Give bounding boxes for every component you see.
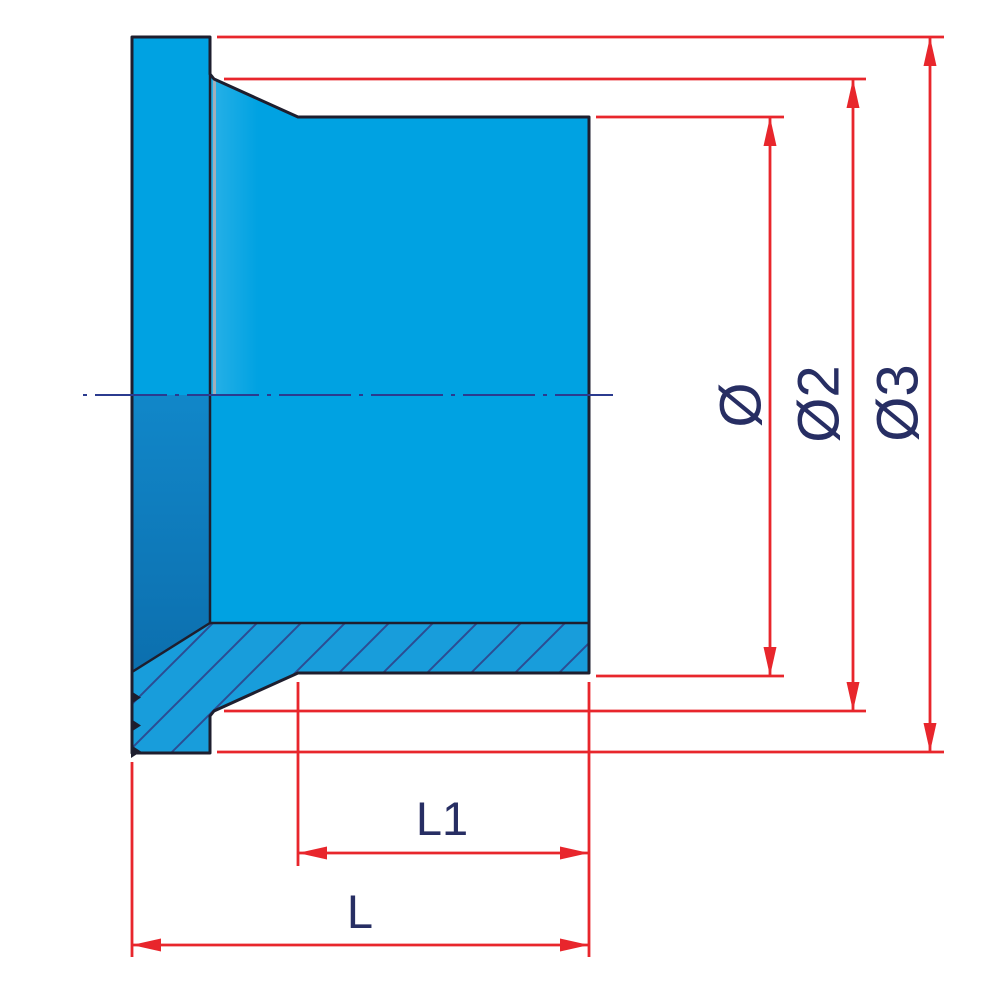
dim-length1-label: L1 [416,792,468,845]
dim-diameter3-label: Ø3 [865,364,930,441]
part-section-hatch [132,623,589,753]
dim-length-label: L [347,885,373,938]
technical-drawing-svg: Ø Ø2 Ø3 L1 L [0,0,1000,1000]
arrowhead-down [924,723,937,752]
arrowhead-left [298,847,327,860]
arrowhead-down [847,682,860,711]
arrowhead-up [847,79,860,108]
dim-length: L [132,762,589,957]
dim-diameter: Ø [596,117,784,676]
arrowhead-right [560,939,589,952]
arrowhead-down [764,647,777,676]
part-cross-section [131,37,589,758]
part-bore-view [210,395,589,623]
arrowhead-left [132,939,161,952]
part-upper-half [132,37,589,395]
arrowhead-right [560,847,589,860]
arrowhead-up [764,117,777,146]
cone-face-highlight [210,79,298,395]
dim-diameter2-label: Ø2 [786,365,851,442]
dim-diameter-label: Ø [708,382,773,427]
drawing-canvas: Ø Ø2 Ø3 L1 L [0,0,1000,1000]
arrowhead-up [924,37,937,66]
dim-length1: L1 [298,682,589,957]
